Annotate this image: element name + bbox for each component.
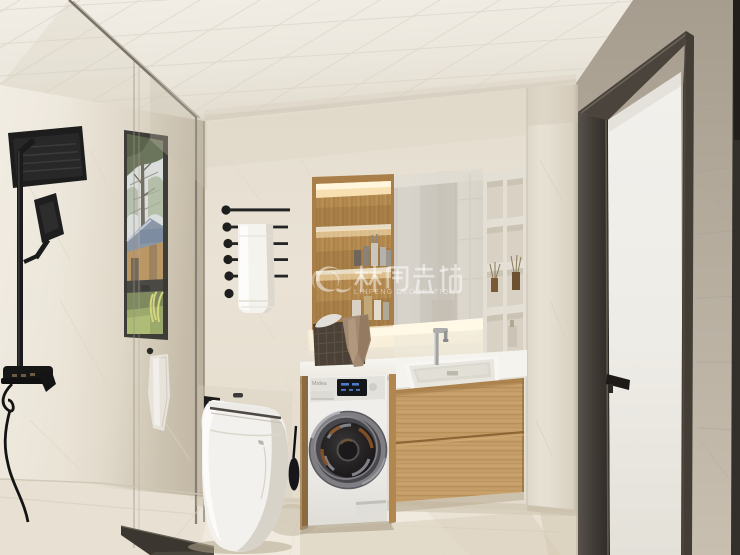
svg-text:LINFENG DECORATION: LINFENG DECORATION [354,289,456,296]
svg-text:Midea: Midea [312,381,327,387]
